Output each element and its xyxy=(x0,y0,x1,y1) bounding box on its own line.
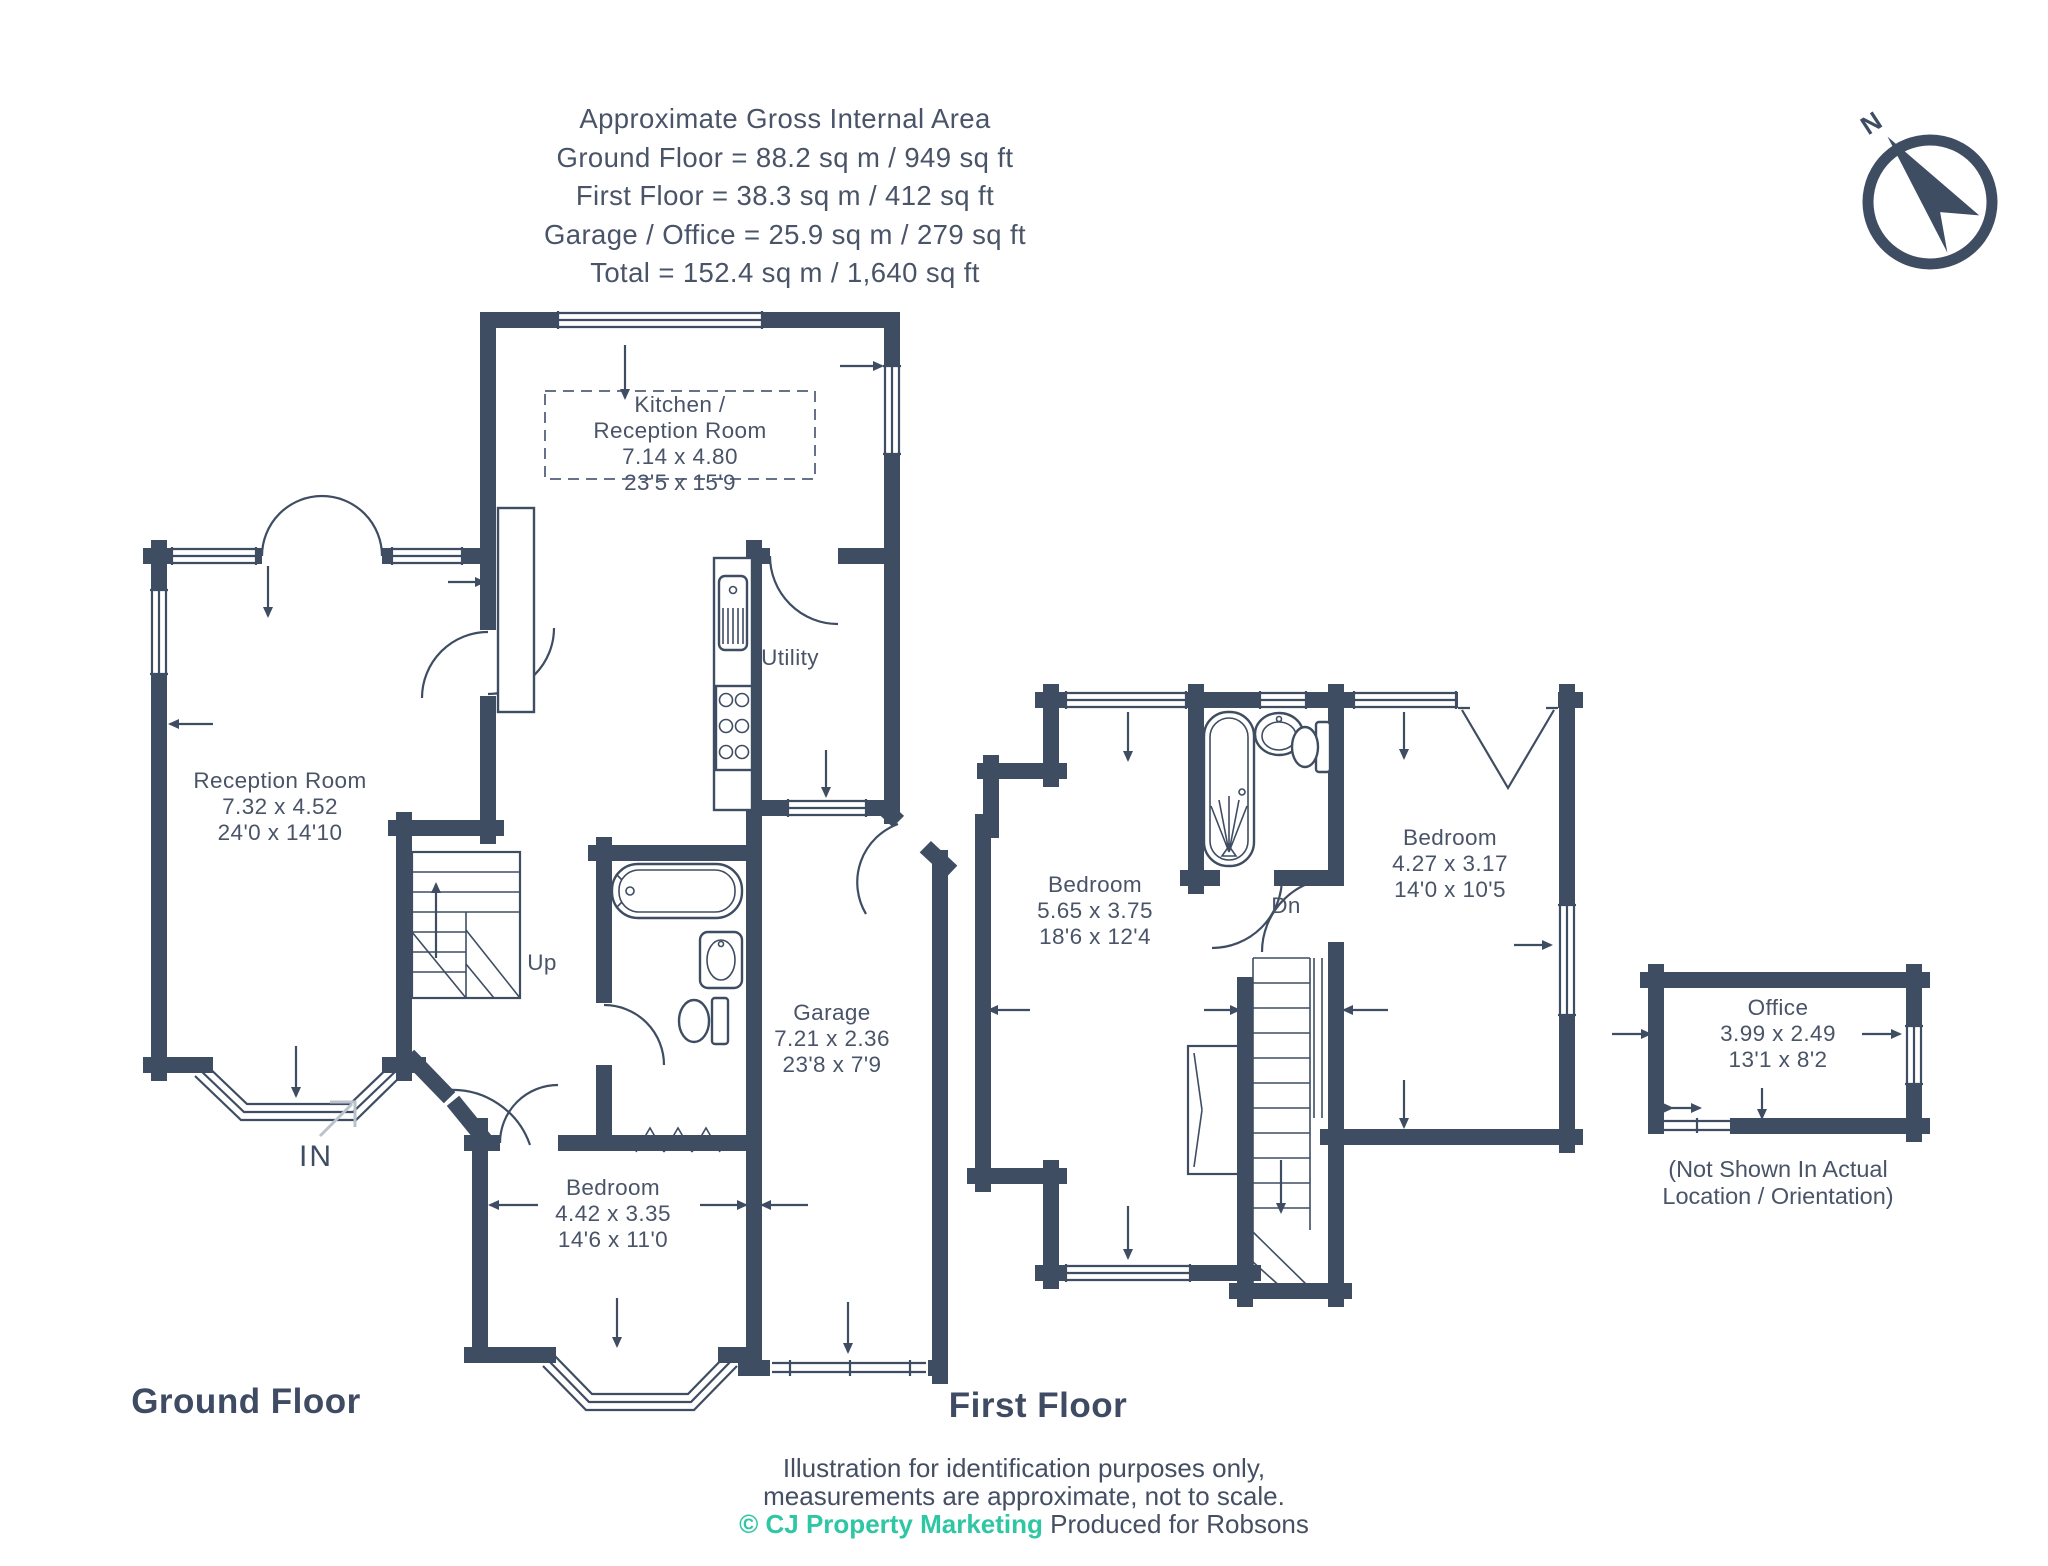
stairs-down-label: Dn xyxy=(1271,893,1301,919)
first-floor-plan xyxy=(975,690,1577,1299)
utility-label: Utility xyxy=(761,645,819,671)
entrance-in-label: IN xyxy=(299,1140,333,1174)
window-bathroom-top xyxy=(1260,690,1306,710)
window-bedroom-right-top xyxy=(1354,690,1456,710)
bathtub xyxy=(612,864,742,918)
bay-window-bedroom xyxy=(543,1352,737,1410)
bedroom-first-right-label: Bedroom 4.27 x 3.17 14'0 x 10'5 xyxy=(1392,825,1508,903)
window-bedroom-left-top xyxy=(1066,690,1186,710)
disclaimer: Illustration for identification purposes… xyxy=(739,1455,1309,1539)
credits: © CJ Property Marketing Produced for Rob… xyxy=(739,1511,1309,1539)
dimension-arrows-ground xyxy=(170,345,882,1352)
bedroom-ground-label: Bedroom 4.42 x 3.35 14'6 x 11'0 xyxy=(555,1175,671,1253)
toilet xyxy=(679,998,728,1044)
ground-floor-plan xyxy=(149,310,946,1410)
closet-bedroom-left xyxy=(1188,1046,1245,1174)
area-total: Total = 152.4 sq m / 1,640 sq ft xyxy=(544,254,1026,293)
reception-label: Reception Room 7.32 x 4.52 24'0 x 14'10 xyxy=(193,768,366,846)
kitchen-label: Kitchen / Reception Room 7.14 x 4.80 23'… xyxy=(593,392,766,496)
bay-window-reception xyxy=(195,1062,401,1120)
window-office-right xyxy=(1904,1026,1924,1084)
first-floor-title: First Floor xyxy=(949,1386,1128,1426)
disclaimer-line1: Illustration for identification purposes… xyxy=(739,1455,1309,1483)
kitchen-hob xyxy=(716,686,752,770)
stairs-down xyxy=(1253,958,1322,1288)
window-reception-top-left xyxy=(172,546,256,566)
area-ground: Ground Floor = 88.2 sq m / 949 sq ft xyxy=(544,139,1026,178)
area-title: Approximate Gross Internal Area xyxy=(544,100,1026,139)
stairs-up-label: Up xyxy=(527,950,557,976)
bathroom-sink xyxy=(700,932,742,988)
window-bedroom-left-bottom xyxy=(1066,1263,1190,1283)
window-kitchen-top xyxy=(558,310,762,330)
area-summary: Approximate Gross Internal Area Ground F… xyxy=(544,100,1026,293)
area-garage-office: Garage / Office = 25.9 sq m / 279 sq ft xyxy=(544,216,1026,255)
kitchen-sink xyxy=(719,576,747,650)
bathtub-first xyxy=(1204,712,1254,866)
copyright-label: © CJ Property Marketing xyxy=(739,1509,1043,1539)
garage-label: Garage 7.21 x 2.36 23'8 x 7'9 xyxy=(774,1000,890,1078)
dimension-arrows-first xyxy=(989,712,1551,1258)
office-label: Office 3.99 x 2.49 13'1 x 8'2 xyxy=(1720,995,1836,1073)
stairs-up xyxy=(412,852,520,998)
compass-icon xyxy=(1836,103,2016,288)
floorplan-page: Approximate Gross Internal Area Ground F… xyxy=(0,0,2048,1566)
window-reception-top-right xyxy=(392,546,462,566)
window-bedroom-right-side xyxy=(1557,905,1577,1015)
window-kitchen-right xyxy=(882,366,902,454)
kitchen-counter-left xyxy=(498,508,534,712)
window-utility xyxy=(788,798,866,818)
closet-bedroom-right xyxy=(1458,692,1558,788)
disclaimer-line2: measurements are approximate, not to sca… xyxy=(739,1483,1309,1511)
ground-floor-title: Ground Floor xyxy=(131,1382,361,1422)
produced-for-label: Produced for Robsons xyxy=(1050,1509,1309,1539)
window-reception-left xyxy=(149,590,169,674)
toilet-first xyxy=(1292,722,1330,772)
office-note: (Not Shown In Actual Location / Orientat… xyxy=(1662,1156,1893,1210)
area-first: First Floor = 38.3 sq m / 412 sq ft xyxy=(544,177,1026,216)
bedroom-first-left-label: Bedroom 5.65 x 3.75 18'6 x 12'4 xyxy=(1037,872,1153,950)
